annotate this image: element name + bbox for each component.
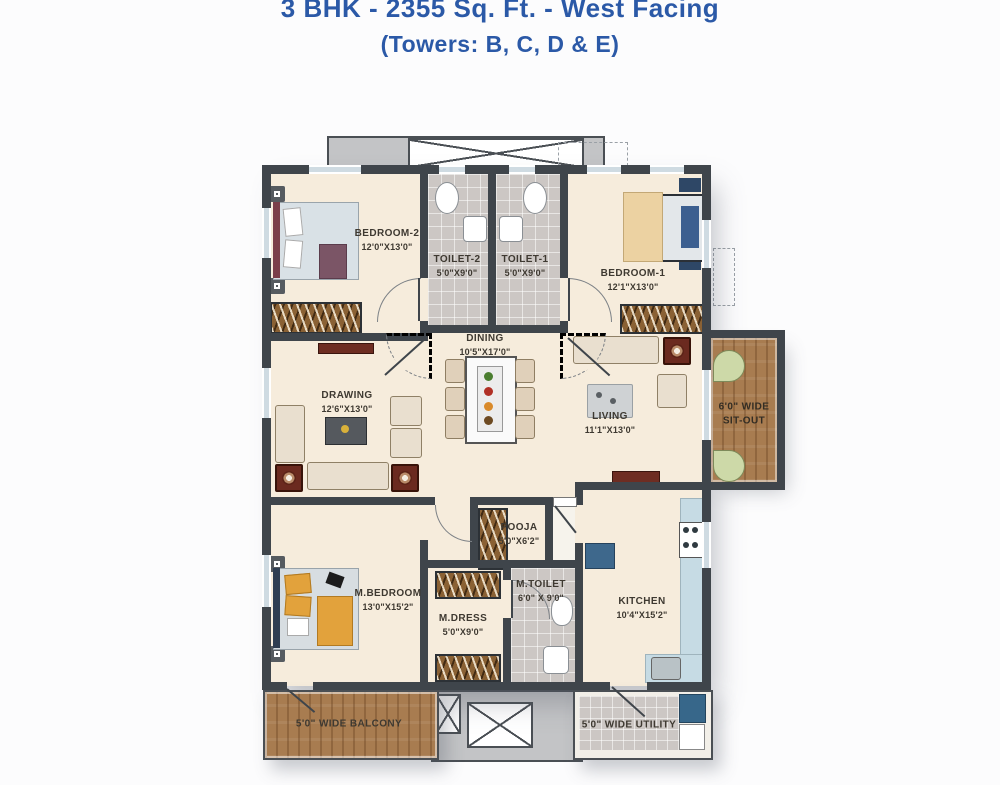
planter-pot: [663, 337, 691, 365]
room-dims: 6'0" X 9'0": [516, 592, 566, 604]
bedroom2-door-leaf: [418, 278, 420, 321]
dining-chair: [515, 415, 535, 439]
bedroom2-label: BEDROOM-2 12'0"X13'0": [355, 227, 420, 253]
room-dims: 12'0"X13'0": [355, 241, 420, 253]
room-dims: 5'0"X6'2": [499, 535, 540, 547]
sitout-chair: [713, 450, 745, 482]
dining-chair: [515, 387, 535, 411]
balcony-label-text: 5'0" WIDE BALCONY: [296, 717, 402, 731]
window: [307, 165, 363, 174]
wall-segment: [470, 497, 553, 505]
room-name: M.DRESS: [439, 612, 487, 626]
room-name: BEDROOM-1: [601, 267, 666, 281]
sitout-label: 6'0" WIDE SIT-OUT: [719, 401, 770, 428]
wall-segment: [488, 174, 496, 325]
mdress-wardrobe-bottom: [435, 654, 501, 682]
mdress-wardrobe-top: [435, 571, 501, 599]
coffee-table-decor: [341, 425, 349, 433]
utility-label-text: 5'0" WIDE UTILITY: [582, 718, 676, 732]
wall-segment: [313, 682, 610, 690]
kitchen-sink: [651, 657, 681, 680]
window: [262, 366, 271, 420]
dining-dish: [484, 372, 493, 381]
drawing-label: DRAWING 12'6"X13'0": [321, 389, 372, 415]
room-dims: 5'0"X9'0": [439, 626, 487, 638]
fridge: [585, 543, 615, 569]
mbedroom-bed-headboard: [273, 568, 280, 648]
pillow: [287, 618, 309, 636]
balcony-label: 5'0" WIDE BALCONY: [296, 717, 402, 731]
projection-dashed-right: [713, 248, 735, 306]
bedroom2-nightstand: [269, 278, 285, 294]
bedroom1-pillow: [681, 206, 699, 248]
window: [507, 165, 537, 174]
wall-segment: [702, 330, 785, 338]
drawing-tv-unit: [318, 343, 374, 354]
room-dims: 10'5"X17'0": [459, 346, 510, 358]
bedroom2-bed-headboard: [273, 202, 280, 278]
wall-segment: [420, 560, 583, 568]
burner: [692, 527, 698, 533]
dining-chair: [445, 359, 465, 383]
rug-decor: [610, 398, 616, 404]
wall-segment: [262, 682, 287, 690]
room-dims: 5'0"X9'0": [434, 267, 481, 279]
bedroom1-door-leaf: [568, 278, 570, 321]
pillow: [283, 207, 304, 237]
room-dims: 11'1"X13'0": [585, 424, 636, 436]
burner: [683, 527, 689, 533]
toilet2-wc: [463, 216, 487, 242]
washing-machine: [679, 694, 706, 723]
bedroom1-nightstand: [679, 178, 701, 192]
wall-segment: [262, 497, 435, 505]
burner: [692, 542, 698, 548]
room-name: M.BEDROOM: [355, 587, 422, 601]
drawing-chair: [390, 428, 422, 458]
drawing-sofa-bottom: [307, 462, 389, 490]
wall-segment: [503, 568, 511, 580]
mbedroom-label: M.BEDROOM 13'0"X15'2": [355, 587, 422, 613]
burner: [683, 542, 689, 548]
bedroom1-blanket: [623, 192, 663, 262]
toilet2-basin: [435, 182, 459, 214]
bedroom2-throw: [319, 244, 347, 279]
sitout-label-line1: 6'0" WIDE: [719, 401, 770, 415]
window: [585, 165, 623, 174]
mtoilet-wc: [543, 646, 569, 674]
rug-decor: [596, 392, 602, 398]
mtoilet-door-leaf: [511, 580, 513, 618]
pillow: [283, 239, 303, 268]
mbedroom-pillow: [284, 573, 312, 595]
wall-segment: [503, 618, 511, 682]
drawing-sofa-left: [275, 405, 305, 463]
room-dims: 5'0"X9'0": [502, 267, 549, 279]
dining-chair: [445, 387, 465, 411]
wall-segment: [420, 165, 428, 278]
room-dims: 12'6"X13'0": [321, 403, 372, 415]
window: [702, 520, 711, 570]
dining-chair: [515, 359, 535, 383]
sitout-glass-door: [702, 368, 711, 442]
bedroom1-label: BEDROOM-1 12'1"X13'0": [601, 267, 666, 293]
mbedroom-pillow: [284, 595, 311, 617]
page-title: 3 BHK - 2355 Sq. Ft. - West Facing: [0, 0, 1000, 24]
planter-pot: [391, 464, 419, 492]
floorplan: BEDROOM-2 12'0"X13'0" TOILET-2 5'0"X9'0"…: [255, 128, 800, 783]
drawing-chair: [390, 396, 422, 426]
mbedroom-throw: [317, 596, 353, 646]
entry-passage-floor: [553, 505, 575, 560]
dining-label: DINING 10'5"X17'0": [459, 332, 510, 358]
mdress-label: M.DRESS 5'0"X9'0": [439, 612, 487, 638]
bedroom2-nightstand: [269, 186, 285, 202]
wall-segment: [777, 330, 785, 490]
sitout-label-line2: SIT-OUT: [719, 414, 770, 428]
wall-segment: [575, 482, 785, 490]
utility-label: 5'0" WIDE UTILITY: [582, 718, 676, 732]
bedroom1-wardrobe: [620, 304, 707, 334]
toilet1-label: TOILET-1 5'0"X9'0": [502, 253, 549, 279]
window: [262, 553, 271, 609]
living-armchair: [657, 374, 687, 408]
wall-segment: [647, 682, 711, 690]
room-name: TOILET-1: [502, 253, 549, 267]
wall-segment: [560, 165, 568, 278]
planter-pot: [275, 464, 303, 492]
room-dims: 13'0"X15'2": [355, 601, 422, 613]
room-dims: 10'4"X15'2": [616, 609, 667, 621]
wall-segment: [545, 505, 553, 568]
mtoilet-label: M.TOILET 6'0" X 9'0": [516, 578, 566, 604]
bedroom2-wardrobe: [270, 302, 362, 334]
wall-segment: [702, 482, 711, 690]
lift-shaft: [467, 702, 533, 748]
room-name: KITCHEN: [616, 595, 667, 609]
dining-dish: [484, 387, 493, 396]
dining-dish: [484, 416, 493, 425]
window: [648, 165, 686, 174]
utility-counter: [679, 724, 705, 750]
room-name: TOILET-2: [434, 253, 481, 267]
toilet1-basin: [523, 182, 547, 214]
pooja-label: POOJA 5'0"X6'2": [499, 521, 540, 547]
dining-chair: [445, 415, 465, 439]
page-header: 3 BHK - 2355 Sq. Ft. - West Facing (Towe…: [0, 0, 1000, 58]
window: [262, 206, 271, 260]
room-name: LIVING: [585, 410, 636, 424]
sitout-chair: [713, 350, 745, 382]
room-name: BEDROOM-2: [355, 227, 420, 241]
dining-dish: [484, 402, 493, 411]
living-label: LIVING 11'1"X13'0": [585, 410, 636, 436]
page-subtitle-towers: (Towers: B, C, D & E): [0, 31, 1000, 58]
room-name: DRAWING: [321, 389, 372, 403]
toilet1-wc: [499, 216, 523, 242]
room-dims: 12'1"X13'0": [601, 281, 666, 293]
window: [437, 165, 467, 174]
room-name: M.TOILET: [516, 578, 566, 592]
toilet2-label: TOILET-2 5'0"X9'0": [434, 253, 481, 279]
room-name: DINING: [459, 332, 510, 346]
room-name: POOJA: [499, 521, 540, 535]
projection-dashed-top: [558, 142, 628, 166]
window: [702, 218, 711, 270]
kitchen-label: KITCHEN 10'4"X15'2": [616, 595, 667, 621]
